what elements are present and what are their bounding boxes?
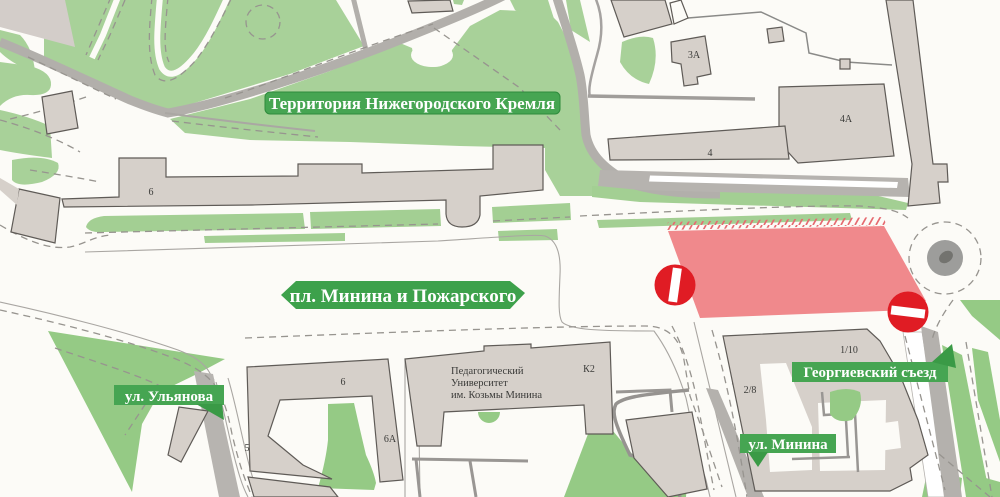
svg-text:ул. Минина: ул. Минина xyxy=(748,437,828,453)
svg-text:ул. Ульянова: ул. Ульянова xyxy=(125,389,214,405)
svg-text:Георгиевский съезд: Георгиевский съезд xyxy=(803,365,936,381)
svg-text:6: 6 xyxy=(149,187,154,198)
svg-text:6: 6 xyxy=(341,377,346,388)
svg-text:им. Козьмы Минина: им. Козьмы Минина xyxy=(451,390,542,401)
svg-text:К2: К2 xyxy=(583,364,595,375)
svg-text:5: 5 xyxy=(245,443,250,454)
svg-text:Территория Нижегородского Крем: Территория Нижегородского Кремля xyxy=(269,94,555,113)
svg-text:Педагогический: Педагогический xyxy=(451,366,524,377)
svg-text:пл. Минина и Пожарского: пл. Минина и Пожарского xyxy=(290,286,517,307)
svg-text:6А: 6А xyxy=(384,434,397,445)
svg-text:3А: 3А xyxy=(688,50,701,61)
svg-text:2/8: 2/8 xyxy=(744,385,757,396)
svg-text:Университет: Университет xyxy=(451,378,508,389)
svg-text:1/10: 1/10 xyxy=(840,345,858,356)
svg-text:4А: 4А xyxy=(840,114,853,125)
svg-text:4: 4 xyxy=(708,148,713,159)
